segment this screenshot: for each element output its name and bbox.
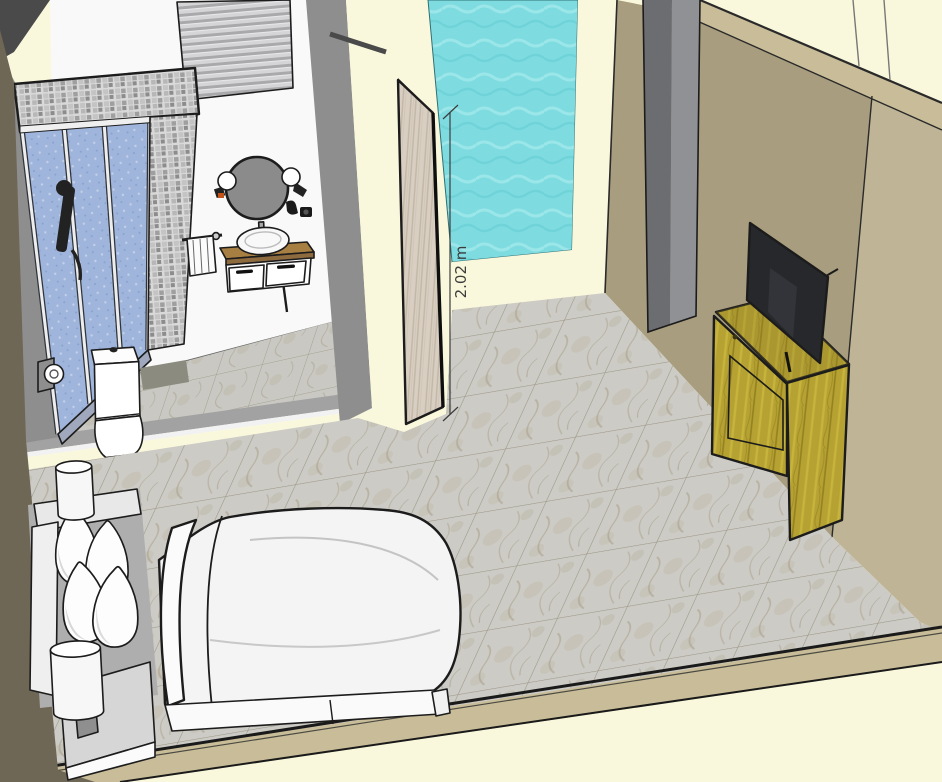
scene-canvas[interactable]: 2.02 m <box>0 0 942 782</box>
duvet <box>159 508 460 714</box>
interior-gray-door[interactable] <box>643 0 700 332</box>
dimension-label: 2.02 m <box>452 246 470 299</box>
table-lamp-upper[interactable] <box>55 460 94 521</box>
round-mirror[interactable] <box>226 157 288 219</box>
table-lamp-lower[interactable] <box>50 640 104 722</box>
model-viewport[interactable]: 2.02 m <box>0 0 942 782</box>
